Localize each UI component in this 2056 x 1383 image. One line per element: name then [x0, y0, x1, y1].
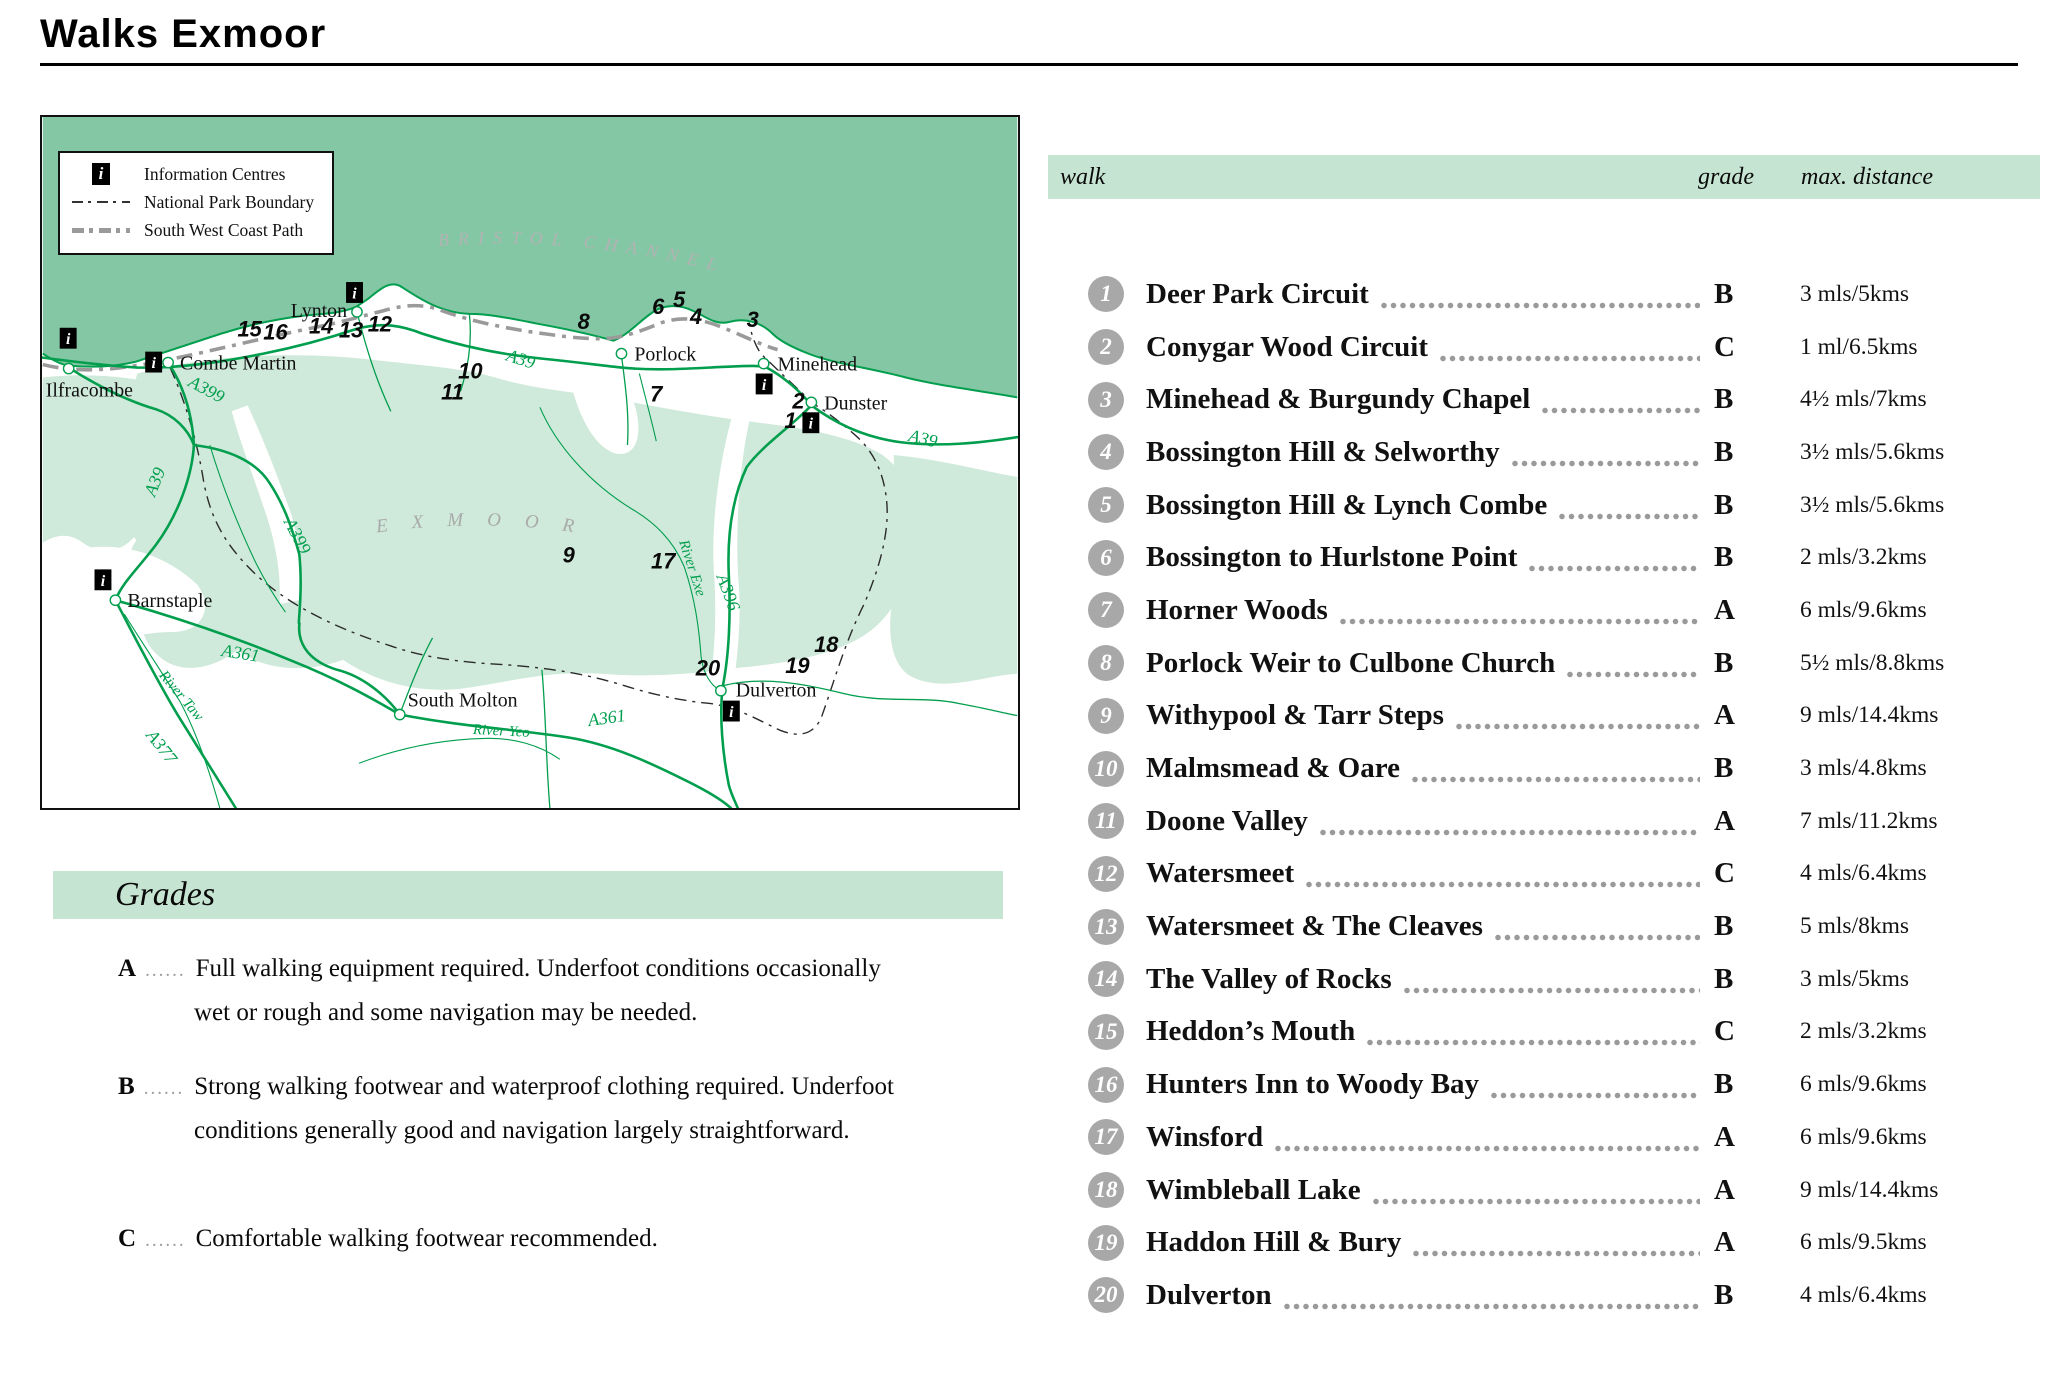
svg-text:i: i [352, 285, 357, 302]
svg-text:i: i [66, 331, 71, 348]
walk-row: 19Haddon Hill & BuryA6 mls/9.5kms [1048, 1216, 2040, 1269]
walk-grade: A [1714, 594, 1800, 627]
walk-row: 18Wimbleball LakeA9 mls/14.4kms [1048, 1164, 2040, 1217]
walk-name: Bossington to Hurlstone Point [1146, 541, 1517, 574]
town-label: Barnstaple [127, 590, 212, 612]
town-marker [163, 357, 173, 367]
grade-letter: B [118, 1073, 135, 1100]
walk-number-map-marker: 4 [689, 304, 702, 329]
walk-row: 11Doone ValleyA7 mls/11.2kms [1048, 795, 2040, 848]
walk-name: Bossington Hill & Lynch Combe [1146, 489, 1547, 522]
walk-number-map-marker: 6 [652, 294, 665, 319]
walk-number-badge: 16 [1088, 1067, 1124, 1103]
header-grade: grade [1698, 164, 1754, 191]
walk-grade: B [1714, 436, 1800, 469]
grade-item-a: A......Full walking equipment required. … [118, 948, 894, 1034]
walk-number-badge: 15 [1088, 1014, 1124, 1050]
walk-row: 3Minehead & Burgundy ChapelB4½ mls/7kms [1048, 373, 2040, 426]
walk-row: 1Deer Park CircuitB3 mls/5kms [1048, 268, 2040, 321]
dotted-leader [1567, 671, 1700, 678]
svg-text:i: i [151, 355, 156, 372]
grade-dots: ...... [136, 960, 196, 981]
walk-distance: 6 mls/9.6kms [1800, 1071, 2040, 1098]
road-label: A361 [586, 705, 627, 730]
walk-grade: B [1714, 910, 1800, 943]
information-centre-icon: i [145, 352, 162, 373]
dotted-leader [1340, 618, 1700, 625]
walk-name: Doone Valley [1146, 805, 1308, 838]
walk-number-map-marker: 19 [785, 653, 810, 678]
town-label: South Molton [408, 690, 518, 712]
walk-number-map-marker: 16 [263, 320, 288, 345]
walk-name: Minehead & Burgundy Chapel [1146, 383, 1530, 416]
walk-distance: 7 mls/11.2kms [1800, 808, 2040, 835]
walk-name: The Valley of Rocks [1146, 963, 1392, 996]
walk-distance: 2 mls/3.2kms [1800, 1018, 2040, 1045]
walk-number-map-marker: 2 [791, 388, 804, 413]
walk-row: 7Horner WoodsA6 mls/9.6kms [1048, 584, 2040, 637]
walk-name: Bossington Hill & Selworthy [1146, 436, 1500, 469]
town-marker [110, 595, 120, 605]
walk-distance: 6 mls/9.6kms [1800, 1124, 2040, 1151]
information-centre-icon: i [802, 412, 819, 433]
svg-text:i: i [809, 416, 814, 433]
legend-row-info: i Information Centres [72, 160, 322, 188]
walk-grade: B [1714, 383, 1800, 416]
road-a361-east [400, 715, 731, 808]
dotted-leader [1456, 723, 1700, 730]
walk-name: Deer Park Circuit [1146, 278, 1369, 311]
grades-heading: Grades [53, 876, 215, 914]
title-rule [40, 63, 2018, 66]
walk-number-badge: 12 [1088, 856, 1124, 892]
walk-name: Wimbleball Lake [1146, 1174, 1361, 1207]
town-marker [806, 397, 816, 407]
town-label: Dunster [824, 392, 887, 414]
town-marker [64, 363, 74, 373]
town-label: Ilfracombe [46, 379, 133, 401]
road-label: A377 [142, 725, 182, 769]
dotted-leader [1512, 460, 1700, 467]
walk-grade: C [1714, 331, 1800, 364]
walk-rows: 1Deer Park CircuitB3 mls/5kms2Conygar Wo… [1048, 268, 2040, 1322]
walk-number-map-marker: 20 [695, 656, 720, 681]
walk-number-badge: 11 [1088, 803, 1124, 839]
walk-distance: 5½ mls/8.8kms [1800, 650, 2040, 677]
walk-number-badge: 1 [1088, 276, 1124, 312]
walk-row: 8Porlock Weir to Culbone ChurchB5½ mls/8… [1048, 637, 2040, 690]
walk-name: Hunters Inn to Woody Bay [1146, 1068, 1479, 1101]
walk-row: 6Bossington to Hurlstone PointB2 mls/3.2… [1048, 531, 2040, 584]
walk-name: Haddon Hill & Bury [1146, 1226, 1401, 1259]
grade-letter: C [118, 1225, 136, 1252]
walk-row: 10Malmsmead & OareB3 mls/4.8kms [1048, 742, 2040, 795]
walk-grade: B [1714, 963, 1800, 996]
legend-label: South West Coast Path [144, 220, 303, 241]
information-centre-icon: i [60, 328, 77, 349]
walk-grade: B [1714, 1279, 1800, 1312]
walks-table: walk grade max. distance 1Deer Park Circ… [1048, 155, 2040, 1322]
walk-distance: 6 mls/9.6kms [1800, 597, 2040, 624]
coast-path-line-icon [72, 228, 130, 233]
walk-distance: 4 mls/6.4kms [1800, 860, 2040, 887]
dotted-leader [1367, 1039, 1700, 1046]
walk-distance: 5 mls/8kms [1800, 913, 2040, 940]
exmoor-map: BRISTOL CHANNEL EXMOOR A39A39A39A399A399… [40, 115, 1020, 810]
dotted-leader [1495, 934, 1700, 941]
svg-text:i: i [729, 704, 734, 721]
legend-row-coastpath: South West Coast Path [72, 216, 322, 244]
boundary-line-icon [72, 201, 130, 203]
walk-row: 15Heddon’s MouthC2 mls/3.2kms [1048, 1006, 2040, 1059]
information-centre-icon: i [756, 374, 773, 395]
walk-name: Winsford [1146, 1121, 1263, 1154]
dotted-leader [1320, 829, 1700, 836]
walk-name: Watersmeet & The Cleaves [1146, 910, 1483, 943]
walk-name: Watersmeet [1146, 857, 1294, 890]
grades-section-header: Grades [53, 871, 1003, 919]
grade-dots: ...... [136, 1230, 196, 1251]
walk-number-map-marker: 18 [814, 632, 839, 657]
svg-text:i: i [101, 573, 106, 590]
map-legend: i Information Centres National Park Boun… [58, 151, 334, 255]
town-marker [758, 358, 768, 368]
information-centre-icon: i [723, 701, 740, 722]
dotted-leader [1412, 776, 1700, 783]
walk-grade: A [1714, 1121, 1800, 1154]
page-title: Walks Exmoor [40, 12, 326, 57]
walk-number-badge: 14 [1088, 961, 1124, 997]
walk-name: Conygar Wood Circuit [1146, 331, 1428, 364]
walk-number-map-marker: 5 [673, 287, 686, 312]
road-label: A39 [503, 345, 538, 373]
walk-distance: 1 ml/6.5kms [1800, 334, 2040, 361]
walk-row: 2Conygar Wood CircuitC1 ml/6.5kms [1048, 321, 2040, 374]
grade-letter: A [118, 955, 136, 982]
walk-number-badge: 2 [1088, 329, 1124, 365]
walk-row: 13Watersmeet & The CleavesB5 mls/8kms [1048, 900, 2040, 953]
walk-number-badge: 20 [1088, 1277, 1124, 1313]
walk-grade: A [1714, 1174, 1800, 1207]
river-label: River Yeo [471, 722, 530, 741]
walk-row: 20DulvertonB4 mls/6.4kms [1048, 1269, 2040, 1322]
walk-distance: 2 mls/3.2kms [1800, 544, 2040, 571]
walk-distance: 3½ mls/5.6kms [1800, 492, 2040, 519]
walk-row: 9Withypool & Tarr StepsA9 mls/14.4kms [1048, 690, 2040, 743]
walk-grade: B [1714, 752, 1800, 785]
walk-row: 5Bossington Hill & Lynch CombeB3½ mls/5.… [1048, 479, 2040, 532]
dotted-leader [1275, 1145, 1700, 1152]
walk-distance: 9 mls/14.4kms [1800, 1177, 2040, 1204]
town-label: Minehead [778, 354, 858, 376]
information-centre-icon: i [92, 163, 110, 185]
dotted-leader [1529, 565, 1700, 572]
information-centre-icon: i [95, 569, 112, 590]
dotted-leader [1542, 407, 1700, 414]
town-label: Combe Martin [180, 353, 297, 375]
legend-row-boundary: National Park Boundary [72, 188, 322, 216]
walk-grade: A [1714, 805, 1800, 838]
information-centre-icon: i [346, 282, 363, 303]
dotted-leader [1440, 355, 1700, 362]
town-marker [352, 307, 362, 317]
walk-number-map-marker: 13 [339, 318, 363, 343]
walk-row: 16Hunters Inn to Woody BayB6 mls/9.6kms [1048, 1058, 2040, 1111]
walk-number-badge: 13 [1088, 909, 1124, 945]
town-label: Porlock [634, 344, 696, 366]
walk-distance: 6 mls/9.5kms [1800, 1229, 2040, 1256]
town-label: Dulverton [736, 680, 817, 702]
walk-row: 14The Valley of RocksB3 mls/5kms [1048, 953, 2040, 1006]
legend-label: Information Centres [144, 164, 285, 185]
river-label: River Taw [155, 667, 207, 724]
walk-name: Malmsmead & Oare [1146, 752, 1400, 785]
walk-grade: C [1714, 1015, 1800, 1048]
walk-number-map-marker: 8 [578, 309, 591, 334]
walk-number-map-marker: 11 [441, 379, 464, 404]
walk-number-badge: 8 [1088, 645, 1124, 681]
walk-row: 4Bossington Hill & SelworthyB3½ mls/5.6k… [1048, 426, 2040, 479]
grade-description: Strong walking footwear and waterproof c… [194, 1073, 894, 1144]
walk-grade: B [1714, 1068, 1800, 1101]
town-marker [716, 686, 726, 696]
walk-number-badge: 10 [1088, 751, 1124, 787]
walk-number-map-marker: 7 [650, 381, 664, 406]
walk-distance: 3 mls/5kms [1800, 966, 2040, 993]
dotted-leader [1306, 881, 1700, 888]
walk-grade: B [1714, 541, 1800, 574]
walk-grade: B [1714, 647, 1800, 680]
header-walk: walk [1060, 164, 1105, 191]
dotted-leader [1491, 1092, 1700, 1099]
walk-name: Dulverton [1146, 1279, 1272, 1312]
walk-number-map-marker: 9 [563, 542, 576, 567]
walk-number-badge: 17 [1088, 1119, 1124, 1155]
walk-grade: C [1714, 857, 1800, 890]
walk-grade: B [1714, 489, 1800, 522]
dotted-leader [1373, 1198, 1700, 1205]
dotted-leader [1381, 302, 1700, 309]
dotted-leader [1413, 1250, 1700, 1257]
walk-row: 12WatersmeetC4 mls/6.4kms [1048, 848, 2040, 901]
walk-number-badge: 7 [1088, 592, 1124, 628]
grade-description: Comfortable walking footwear recommended… [196, 1225, 658, 1252]
walk-number-badge: 6 [1088, 540, 1124, 576]
walk-distance: 3 mls/5kms [1800, 281, 2040, 308]
town-marker [616, 348, 626, 358]
walk-distance: 3½ mls/5.6kms [1800, 439, 2040, 466]
grade-item-c: C......Comfortable walking footwear reco… [118, 1218, 894, 1262]
walk-name: Withypool & Tarr Steps [1146, 699, 1444, 732]
walk-number-map-marker: 12 [368, 312, 392, 337]
walk-distance: 4 mls/6.4kms [1800, 1282, 2040, 1309]
walk-grade: A [1714, 699, 1800, 732]
road-label: A39 [906, 425, 940, 452]
svg-text:i: i [762, 377, 767, 394]
walk-distance: 3 mls/4.8kms [1800, 755, 2040, 782]
header-max-distance: max. distance [1801, 164, 1933, 191]
walk-distance: 9 mls/14.4kms [1800, 702, 2040, 729]
walk-name: Porlock Weir to Culbone Church [1146, 647, 1555, 680]
walk-number-badge: 3 [1088, 382, 1124, 418]
walk-grade: A [1714, 1226, 1800, 1259]
walk-number-map-marker: 14 [309, 314, 333, 339]
grade-description: Full walking equipment required. Underfo… [194, 955, 881, 1026]
walk-number-badge: 19 [1088, 1225, 1124, 1261]
walk-number-badge: 4 [1088, 434, 1124, 470]
grade-dots: ...... [135, 1078, 195, 1099]
dotted-leader [1284, 1303, 1700, 1310]
walk-name: Heddon’s Mouth [1146, 1015, 1355, 1048]
walk-number-map-marker: 17 [651, 548, 677, 573]
legend-label: National Park Boundary [144, 192, 314, 213]
walks-table-header: walk grade max. distance [1048, 155, 2040, 199]
walk-distance: 4½ mls/7kms [1800, 386, 2040, 413]
walk-number-badge: 5 [1088, 487, 1124, 523]
town-marker [395, 709, 405, 719]
walk-grade: B [1714, 278, 1800, 311]
walk-number-map-marker: 3 [747, 307, 759, 332]
grade-item-b: B......Strong walking footwear and water… [118, 1066, 894, 1152]
walk-number-map-marker: 15 [237, 317, 262, 342]
walk-row: 17WinsfordA6 mls/9.6kms [1048, 1111, 2040, 1164]
walk-name: Horner Woods [1146, 594, 1328, 627]
walk-number-badge: 18 [1088, 1172, 1124, 1208]
dotted-leader [1559, 513, 1700, 520]
dotted-leader [1404, 987, 1700, 994]
walk-number-badge: 9 [1088, 698, 1124, 734]
